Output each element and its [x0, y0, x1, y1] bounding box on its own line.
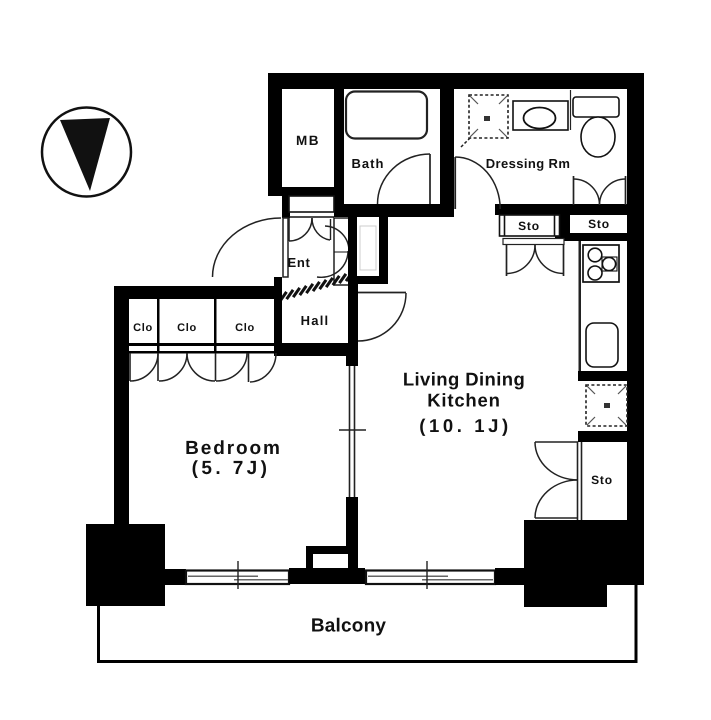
svg-text:Bath: Bath — [352, 156, 385, 171]
svg-text:Clo: Clo — [177, 322, 197, 334]
svg-text:Sto: Sto — [588, 217, 610, 231]
svg-text:Sto: Sto — [518, 219, 540, 233]
svg-text:Balcony: Balcony — [311, 616, 387, 637]
svg-text:Hall: Hall — [301, 313, 330, 328]
svg-text:Living Dining: Living Dining — [403, 369, 525, 390]
svg-text:Clo: Clo — [235, 322, 255, 334]
svg-text:Bedroom: Bedroom — [185, 438, 282, 459]
svg-text:(10. 1J): (10. 1J) — [419, 415, 512, 436]
svg-text:(5. 7J): (5. 7J) — [192, 458, 271, 479]
svg-text:Ent: Ent — [287, 255, 310, 270]
svg-text:Dressing Rm: Dressing Rm — [486, 156, 571, 171]
svg-text:Clo: Clo — [133, 322, 153, 334]
svg-text:MB: MB — [296, 133, 320, 148]
svg-text:Sto: Sto — [591, 473, 613, 487]
svg-text:Kitchen: Kitchen — [427, 390, 500, 411]
